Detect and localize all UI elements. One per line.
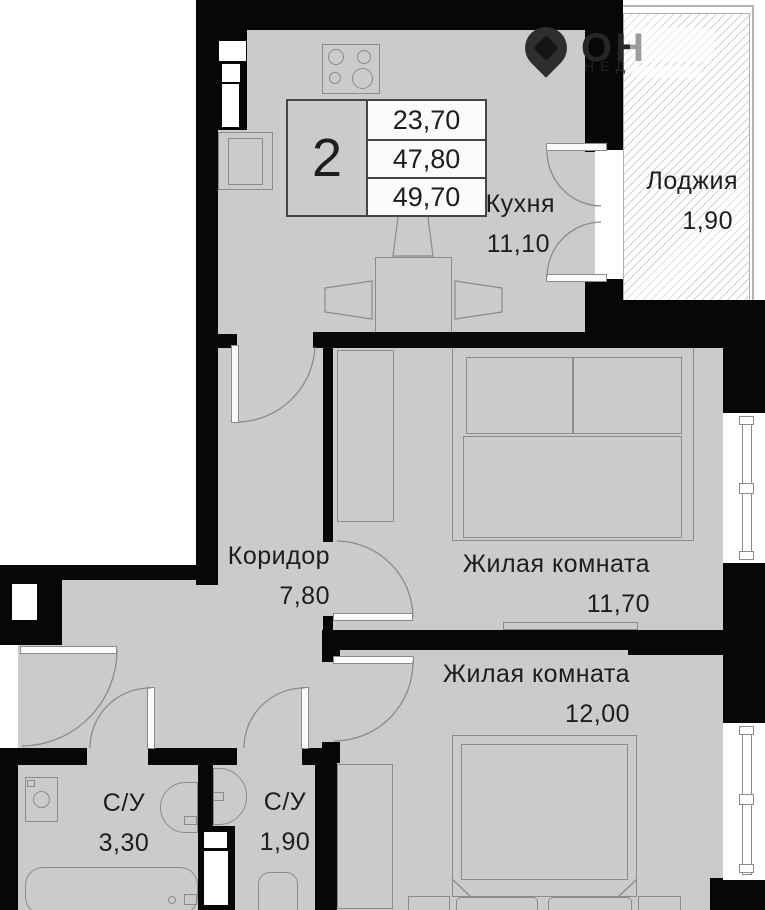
- room-label-corridor: Коридор 7,80: [210, 543, 330, 610]
- room-label-living2: Жилая комната 12,00: [415, 661, 630, 728]
- unit-rooms-badge: 2: [288, 101, 368, 215]
- watermark-faint-shape: [632, 66, 702, 78]
- room-name: С/У: [64, 790, 184, 818]
- bed-corner-folds: [452, 879, 637, 897]
- door-arc-bath2: [244, 688, 305, 748]
- room-name: Кухня: [440, 191, 555, 219]
- room-label-kitchen: Кухня 11,10: [440, 191, 555, 258]
- room-label-bath1: С/У 3,30: [64, 790, 184, 857]
- door-arc-entrance: [22, 650, 117, 746]
- room-name: С/У: [225, 789, 345, 817]
- floor-plan: 2 23,70 47,80 49,70 Кухня 11,10 Лоджия 1…: [0, 0, 765, 910]
- room-name: Жилая комната: [415, 661, 630, 689]
- watermark-pin-hole: [533, 35, 558, 60]
- door-arc-living1: [337, 541, 413, 617]
- room-area: 11,70: [435, 591, 650, 619]
- room-area: 1,90: [608, 208, 738, 236]
- door-arc-living2: [334, 661, 413, 741]
- chair: [325, 281, 372, 319]
- room-label-bath2: С/У 1,90: [225, 789, 345, 856]
- door-arc-bath1: [90, 688, 151, 748]
- room-area: 7,80: [210, 583, 330, 611]
- room-name: Жилая комната: [435, 551, 650, 579]
- room-area: 1,90: [225, 829, 345, 857]
- door-arc-balcony-bottom: [547, 222, 601, 277]
- room-name: Коридор: [210, 543, 330, 571]
- watermark-subtitle-text: НЕД: [584, 58, 631, 74]
- unit-info-value: 47,80: [368, 139, 485, 177]
- door-arc-kitchen: [239, 347, 315, 422]
- room-name: Лоджия: [608, 168, 738, 196]
- room-area: 12,00: [415, 701, 630, 729]
- watermark-faint-shape: [630, 28, 715, 62]
- room-area: 11,10: [440, 231, 555, 259]
- unit-info-value: 23,70: [368, 101, 485, 139]
- room-label-living1: Жилая комната 11,70: [435, 551, 650, 618]
- room-area: 3,30: [64, 830, 184, 858]
- door-arc-balcony-top: [547, 151, 601, 206]
- chair: [455, 281, 502, 319]
- room-label-loggia: Лоджия 1,90: [608, 168, 738, 235]
